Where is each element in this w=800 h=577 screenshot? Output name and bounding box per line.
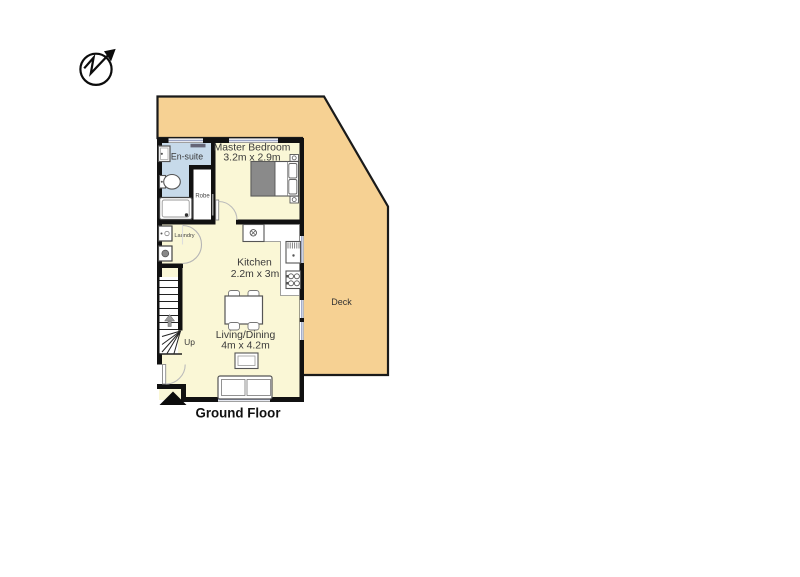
svg-text:Up: Up xyxy=(184,337,195,347)
svg-text:Laundry: Laundry xyxy=(174,233,194,239)
svg-text:3.2m x 2.9m: 3.2m x 2.9m xyxy=(223,153,280,164)
svg-text:2.2m x 3m: 2.2m x 3m xyxy=(231,269,280,280)
svg-text:Robe: Robe xyxy=(195,194,210,200)
svg-text:En-suite: En-suite xyxy=(171,152,203,162)
svg-text:Ground Floor: Ground Floor xyxy=(196,405,282,421)
svg-text:Deck: Deck xyxy=(331,297,352,307)
svg-text:Kitchen: Kitchen xyxy=(237,258,272,269)
svg-text:4m x 4.2m: 4m x 4.2m xyxy=(221,340,270,351)
